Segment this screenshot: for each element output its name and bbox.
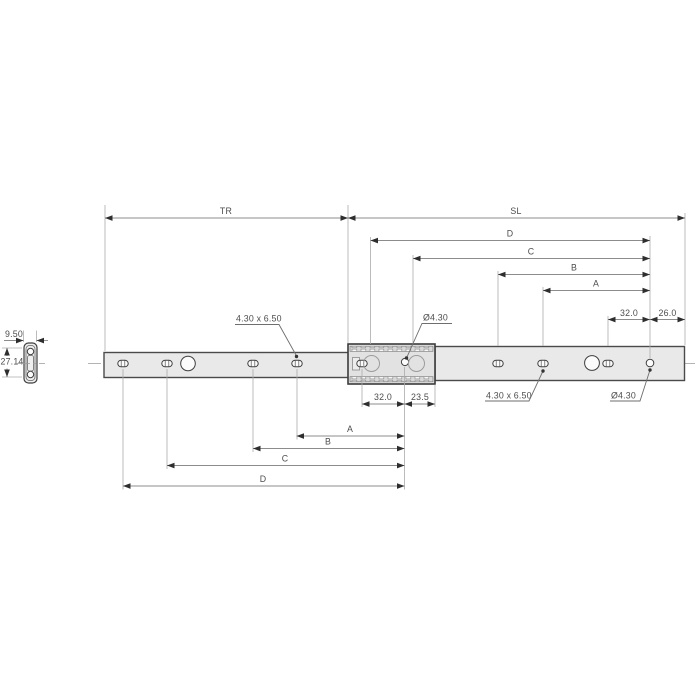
drawer-member-rail [104,353,352,378]
drawer-slide-technical-drawing: 9.50 27.14 [0,0,700,700]
dim-label-bottom-d: D [260,474,267,484]
slot-hole [538,360,548,367]
hole-callout-left-label: Ø4.30 [423,313,448,323]
dim-label-top-26: 26.0 [659,308,677,318]
drawing-canvas: 9.50 27.14 [0,0,700,700]
slot-callout-right-label: 4.30 x 6.50 [486,391,532,401]
hole-callout-right-label: Ø4.30 [611,391,636,401]
section-ball-bottom [27,371,33,377]
dim-label-bottom-32: 32.0 [374,392,392,402]
slot-hole [118,360,128,367]
dim-label-top-32: 32.0 [620,308,638,318]
dim-label-tr: TR [220,206,232,216]
large-round-hole [585,356,600,371]
bottom-dimensions: 32.0 23.5 A B C D [123,392,435,486]
dim-label-sl: SL [510,206,521,216]
cross-section-view: 9.50 27.14 [1,329,49,383]
slot-hole [493,360,503,367]
section-width-label: 9.50 [5,329,23,339]
dim-label-bottom-a: A [347,424,353,434]
dim-label-bottom-b: B [325,437,331,447]
dim-label-bottom-c: C [282,454,289,464]
large-round-hole [181,356,196,371]
slot-hole [603,360,613,367]
ball-retainer-bottom [350,377,433,382]
small-round-hole [646,359,654,367]
cabinet-member-rail [435,347,685,381]
dim-label-top-a: A [593,279,599,289]
top-dimensions: TR SL D C B A 32.0 26.0 [105,206,685,320]
slot-hole [357,360,367,367]
dim-label-top-c: C [528,247,535,257]
slot-callout-left-label: 4.30 x 6.50 [236,314,282,324]
dim-label-top-b: B [571,263,577,273]
section-ball-top [27,348,33,354]
slide-assembly [104,344,685,384]
ball-retainer-top [350,346,433,351]
slot-hole [292,360,302,367]
slot-hole [162,360,172,367]
dim-label-top-d: D [507,229,514,239]
slot-hole [248,360,258,367]
section-height-label: 27.14 [1,357,24,367]
ball-retainer-section [348,344,435,384]
small-round-hole [401,358,408,365]
dim-label-bottom-23-5: 23.5 [411,392,429,402]
